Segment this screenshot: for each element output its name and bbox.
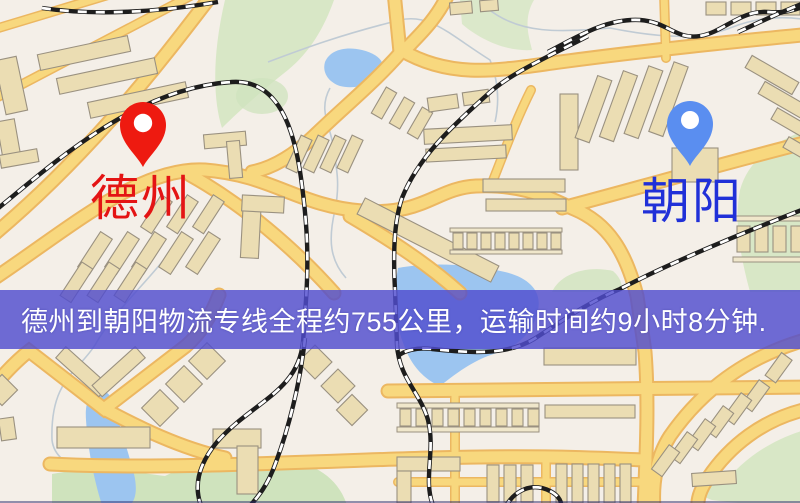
destination-pin-shape [667,101,713,166]
map-canvas [0,0,800,503]
info-banner-text: 德州到朝阳物流专线全程约755公里，运输时间约9小时8分钟. [0,300,767,339]
map-screenshot: 德州 朝阳 德州到朝阳物流专线全程约755公里，运输时间约9小时8分钟. [0,0,800,503]
destination-label: 朝阳 [641,178,743,227]
origin-label: 德州 [90,175,192,224]
origin-pin-hole [134,114,152,132]
origin-pin-icon[interactable] [117,97,169,169]
destination-pin-icon[interactable] [664,96,716,168]
info-banner: 德州到朝阳物流专线全程约755公里，运输时间约9小时8分钟. [0,290,800,349]
origin-pin-shape [120,102,166,167]
destination-pin-hole [681,111,699,129]
